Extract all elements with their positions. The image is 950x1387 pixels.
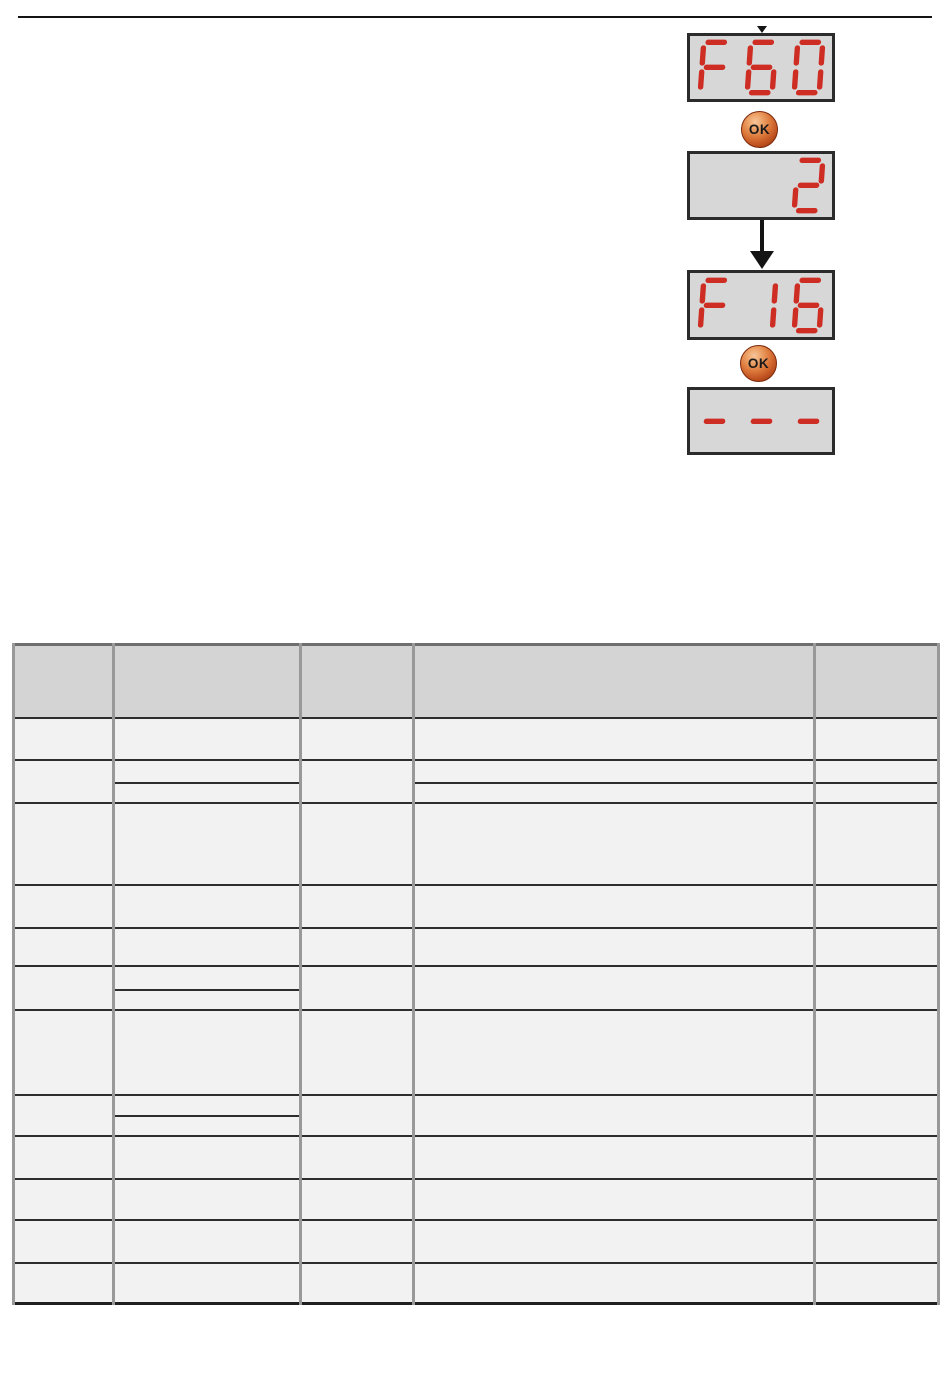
table-header-cell bbox=[815, 645, 939, 718]
table-row bbox=[14, 1095, 939, 1116]
table-cell bbox=[14, 1010, 114, 1095]
seven-segment-display-2 bbox=[687, 151, 835, 220]
table-cell bbox=[414, 966, 815, 1010]
table-cell bbox=[14, 1263, 114, 1304]
table-row bbox=[14, 885, 939, 928]
table-cell bbox=[14, 1220, 114, 1263]
table-row bbox=[14, 718, 939, 760]
table-cell bbox=[14, 1095, 114, 1136]
table-cell bbox=[815, 783, 939, 803]
down-arrowhead-icon bbox=[750, 251, 774, 269]
table-cell bbox=[301, 1010, 414, 1095]
table-row bbox=[14, 1010, 939, 1095]
table-cell bbox=[414, 760, 815, 783]
table-cell bbox=[301, 1095, 414, 1136]
table-cell bbox=[301, 966, 414, 1010]
seven-segment-digit bbox=[741, 277, 782, 334]
table-cell bbox=[14, 1179, 114, 1220]
table-cell bbox=[815, 1010, 939, 1095]
table-cell bbox=[815, 1095, 939, 1136]
seven-segment-digit bbox=[741, 393, 782, 450]
ok-button-label: OK bbox=[748, 356, 769, 371]
table-cell bbox=[815, 1220, 939, 1263]
table-cell bbox=[301, 760, 414, 803]
table-cell bbox=[414, 803, 815, 885]
table-cell bbox=[815, 803, 939, 885]
table-cell bbox=[815, 760, 939, 783]
table-cell bbox=[301, 718, 414, 760]
table-cell bbox=[114, 783, 301, 803]
table-cell bbox=[301, 1136, 414, 1179]
table-row bbox=[14, 1136, 939, 1179]
ok-button: OK bbox=[740, 345, 777, 382]
table-row bbox=[14, 966, 939, 990]
seven-segment-display-f16 bbox=[687, 270, 835, 340]
table-cell bbox=[114, 1010, 301, 1095]
table-cell bbox=[14, 803, 114, 885]
table-cell bbox=[414, 1136, 815, 1179]
parameter-table bbox=[12, 643, 940, 1305]
table-cell bbox=[414, 1220, 815, 1263]
table-header-cell bbox=[14, 645, 114, 718]
table-cell bbox=[414, 1263, 815, 1304]
table-header-cell bbox=[114, 645, 301, 718]
seven-segment-digit bbox=[788, 277, 829, 334]
table-cell bbox=[114, 1136, 301, 1179]
table-cell bbox=[114, 1116, 301, 1136]
seven-segment-digit bbox=[694, 157, 735, 214]
table-header-cell bbox=[414, 645, 815, 718]
table-cell bbox=[414, 1010, 815, 1095]
table-cell bbox=[301, 803, 414, 885]
table-cell bbox=[114, 718, 301, 760]
seven-segment-digit bbox=[741, 39, 782, 96]
table-cell bbox=[301, 885, 414, 928]
table-cell bbox=[815, 928, 939, 966]
table-cell bbox=[815, 1136, 939, 1179]
table-cell bbox=[114, 760, 301, 783]
table-cell bbox=[14, 885, 114, 928]
table-row bbox=[14, 803, 939, 885]
table-row bbox=[14, 760, 939, 783]
table-cell bbox=[815, 885, 939, 928]
table-subrow bbox=[14, 783, 939, 803]
table-header-cell bbox=[301, 645, 414, 718]
table-cell bbox=[14, 760, 114, 803]
arrow-down-tip-icon bbox=[757, 26, 767, 33]
seven-segment-display-dashes bbox=[687, 387, 835, 455]
table-cell bbox=[414, 1095, 815, 1136]
down-arrow-icon bbox=[760, 220, 764, 252]
seven-segment-digit bbox=[788, 39, 829, 96]
table-cell bbox=[114, 990, 301, 1010]
table-cell bbox=[815, 718, 939, 760]
table-header-row bbox=[14, 645, 939, 718]
seven-segment-digit bbox=[694, 277, 735, 334]
table-cell bbox=[114, 1263, 301, 1304]
table-cell bbox=[14, 928, 114, 966]
page-header-rule bbox=[18, 16, 932, 18]
table-cell bbox=[414, 1179, 815, 1220]
table-cell bbox=[14, 966, 114, 1010]
seven-segment-digit bbox=[788, 157, 829, 214]
table-cell bbox=[301, 1220, 414, 1263]
table-cell bbox=[14, 1136, 114, 1179]
table-cell bbox=[414, 718, 815, 760]
table-cell bbox=[114, 1095, 301, 1116]
seven-segment-digit bbox=[741, 157, 782, 214]
table-cell bbox=[114, 1179, 301, 1220]
table-cell bbox=[414, 885, 815, 928]
seven-segment-digit bbox=[694, 39, 735, 96]
seven-segment-digit bbox=[788, 393, 829, 450]
seven-segment-display-f60 bbox=[687, 33, 835, 102]
ok-button: OK bbox=[741, 111, 778, 148]
table-row bbox=[14, 1179, 939, 1220]
table-row bbox=[14, 928, 939, 966]
table-row bbox=[14, 1220, 939, 1263]
table-row bbox=[14, 1263, 939, 1304]
manual-document-page: OK OK bbox=[0, 0, 950, 1387]
table-cell bbox=[815, 1263, 939, 1304]
table-cell bbox=[14, 718, 114, 760]
table-cell bbox=[815, 1179, 939, 1220]
table-cell bbox=[414, 928, 815, 966]
table-cell bbox=[815, 966, 939, 1010]
table-cell bbox=[114, 803, 301, 885]
table-cell bbox=[114, 966, 301, 990]
table-cell bbox=[114, 1220, 301, 1263]
table-cell bbox=[114, 928, 301, 966]
table-cell bbox=[301, 1179, 414, 1220]
seven-segment-digit bbox=[694, 393, 735, 450]
table-cell bbox=[414, 783, 815, 803]
table-cell bbox=[301, 1263, 414, 1304]
table-cell bbox=[114, 885, 301, 928]
ok-button-label: OK bbox=[749, 122, 770, 137]
table-cell bbox=[301, 928, 414, 966]
